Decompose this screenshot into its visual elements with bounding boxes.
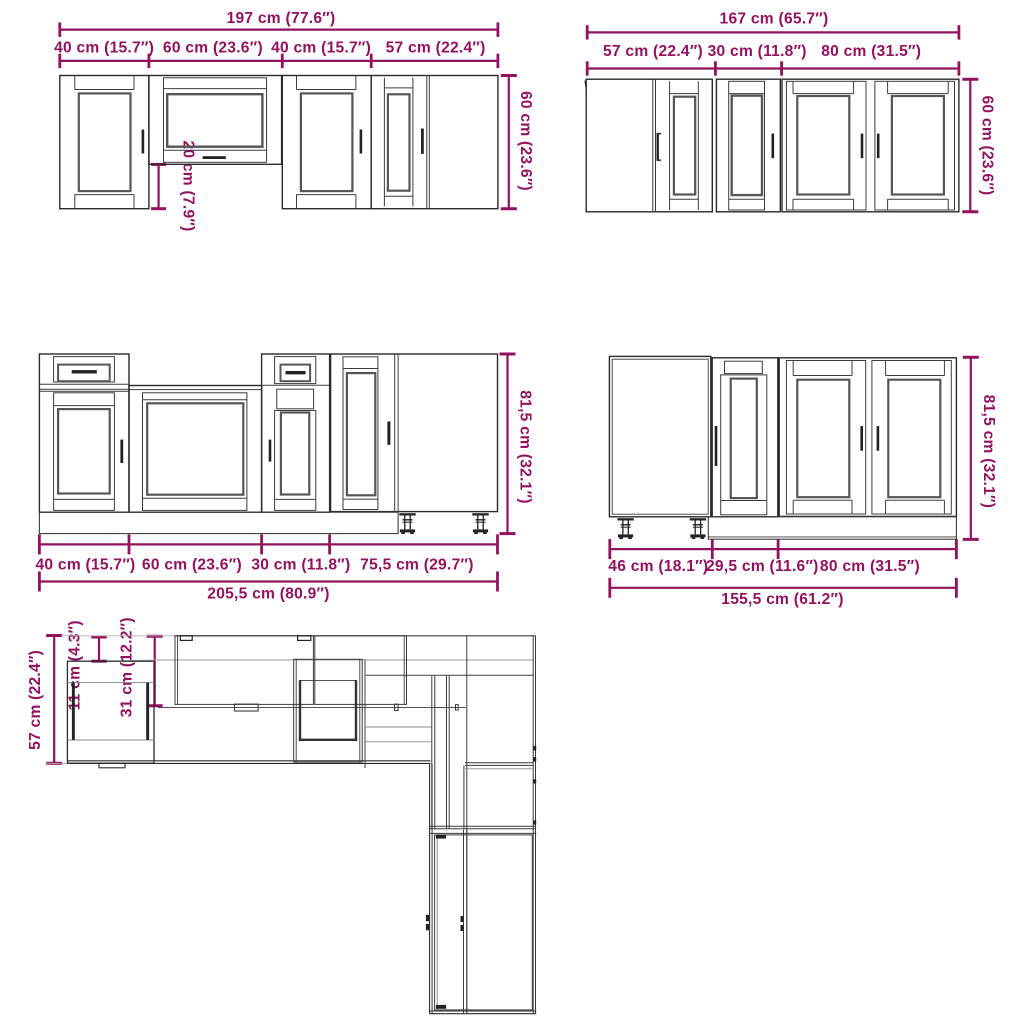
svg-text:40 cm (15.7″): 40 cm (15.7″)	[54, 39, 154, 56]
svg-text:60 cm (23.6″): 60 cm (23.6″)	[163, 39, 263, 56]
svg-text:20 cm (7.9″): 20 cm (7.9″)	[179, 140, 196, 231]
svg-text:81,5 cm (32.1″): 81,5 cm (32.1″)	[516, 390, 533, 504]
svg-text:31 cm (12.2″): 31 cm (12.2″)	[119, 617, 136, 717]
svg-text:57 cm (22.4″): 57 cm (22.4″)	[386, 39, 486, 56]
svg-text:30 cm (11.8″): 30 cm (11.8″)	[708, 43, 807, 60]
svg-text:80 cm (31.5″): 80 cm (31.5″)	[820, 558, 920, 575]
svg-text:60 cm (23.6″): 60 cm (23.6″)	[978, 95, 995, 195]
svg-text:57 cm (22.4″): 57 cm (22.4″)	[27, 650, 44, 750]
svg-text:60 cm (23.6″): 60 cm (23.6″)	[142, 556, 242, 573]
svg-text:40 cm (15.7″): 40 cm (15.7″)	[35, 556, 135, 573]
svg-text:197 cm (77.6″): 197 cm (77.6″)	[227, 10, 336, 27]
svg-text:11 cm (4.3″): 11 cm (4.3″)	[67, 620, 84, 710]
svg-text:167 cm (65.7″): 167 cm (65.7″)	[720, 11, 829, 28]
svg-text:80 cm (31.5″): 80 cm (31.5″)	[821, 43, 921, 60]
svg-text:57 cm (22.4″): 57 cm (22.4″)	[603, 43, 703, 60]
svg-text:75,5 cm (29.7″): 75,5 cm (29.7″)	[360, 556, 474, 573]
svg-text:205,5 cm (80.9″): 205,5 cm (80.9″)	[207, 586, 329, 603]
svg-text:81,5 cm (32.1″): 81,5 cm (32.1″)	[980, 395, 997, 509]
svg-text:46 cm (18.1″): 46 cm (18.1″)	[608, 558, 708, 575]
svg-text:60 cm (23.6″): 60 cm (23.6″)	[517, 91, 534, 191]
svg-text:155,5 cm (61.2″): 155,5 cm (61.2″)	[721, 591, 843, 608]
svg-text:30 cm (11.8″): 30 cm (11.8″)	[251, 556, 350, 573]
svg-text:29,5 cm (11.6″): 29,5 cm (11.6″)	[706, 558, 819, 575]
svg-text:40 cm (15.7″): 40 cm (15.7″)	[271, 39, 371, 56]
